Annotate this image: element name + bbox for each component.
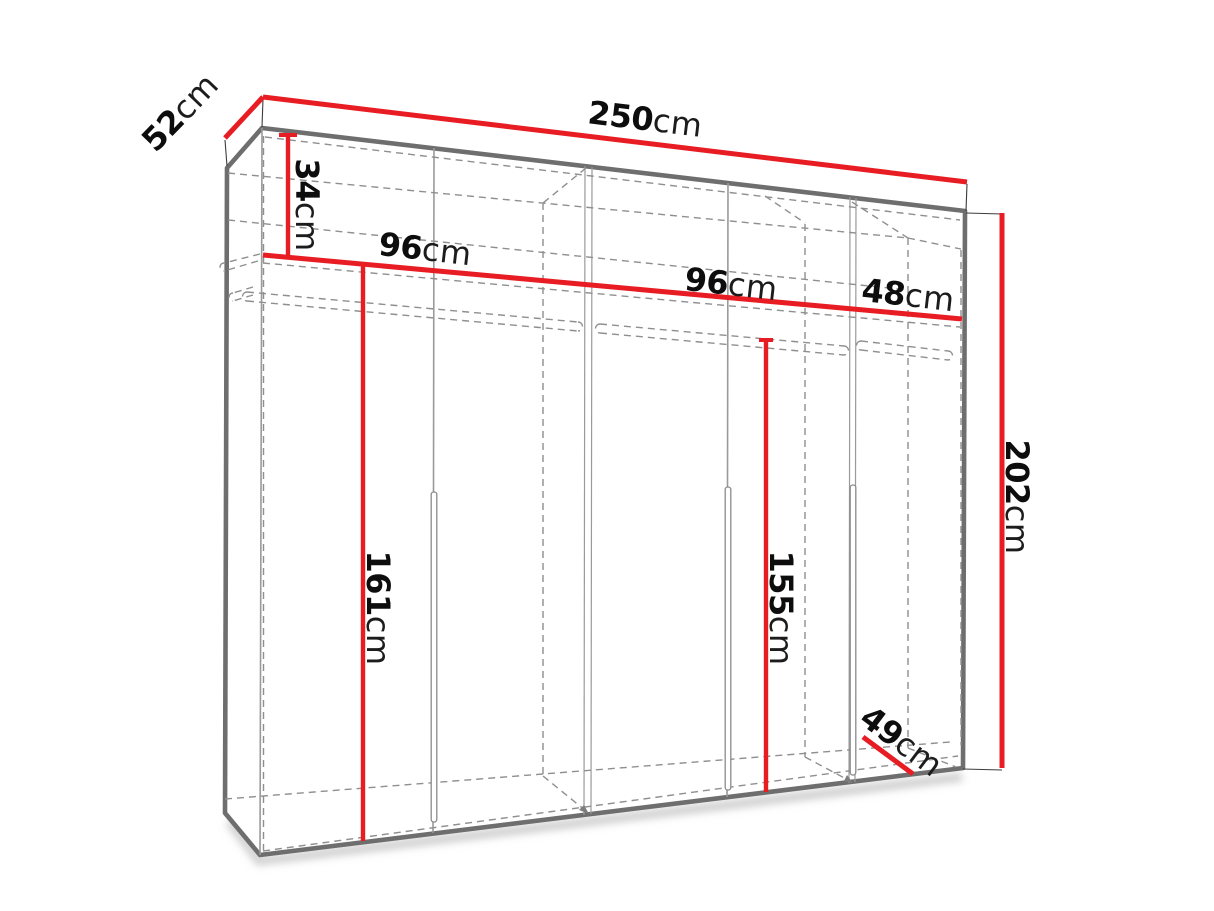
ext-width-right [966,184,967,211]
label-depth-52: 52cm [134,66,226,160]
ext-width-left [262,99,263,127]
label-shelf-drop-34: 34cm [288,158,326,251]
wardrobe-diagram: 250cm 52cm 34cm 96cm 96cm 48cm 161cm 155… [0,0,1214,911]
label-hang-161: 161cm [359,550,397,665]
wardrobe-diagram-page: 250cm 52cm 34cm 96cm 96cm 48cm 161cm 155… [0,0,1214,911]
ext-depth [225,140,227,166]
door-handle-2 [725,487,731,790]
door-handle-1 [431,492,437,822]
label-height-202: 202cm [998,439,1036,554]
shelf-side-cap [220,263,224,271]
ext-height-bottom [963,769,1002,770]
label-hang-155: 155cm [762,550,800,665]
ext-height-top [966,213,1002,214]
door-handle-3 [850,485,856,775]
